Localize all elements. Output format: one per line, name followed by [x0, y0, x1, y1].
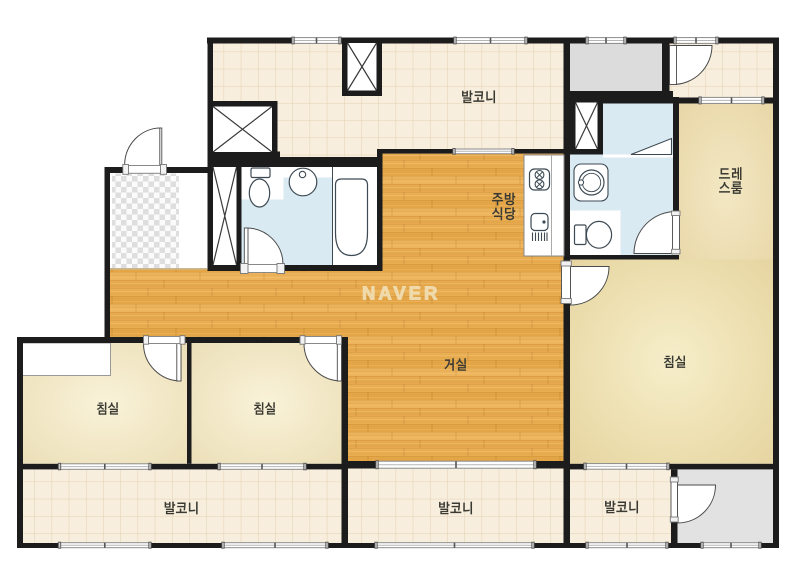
svg-text:NAVER: NAVER	[362, 283, 440, 304]
